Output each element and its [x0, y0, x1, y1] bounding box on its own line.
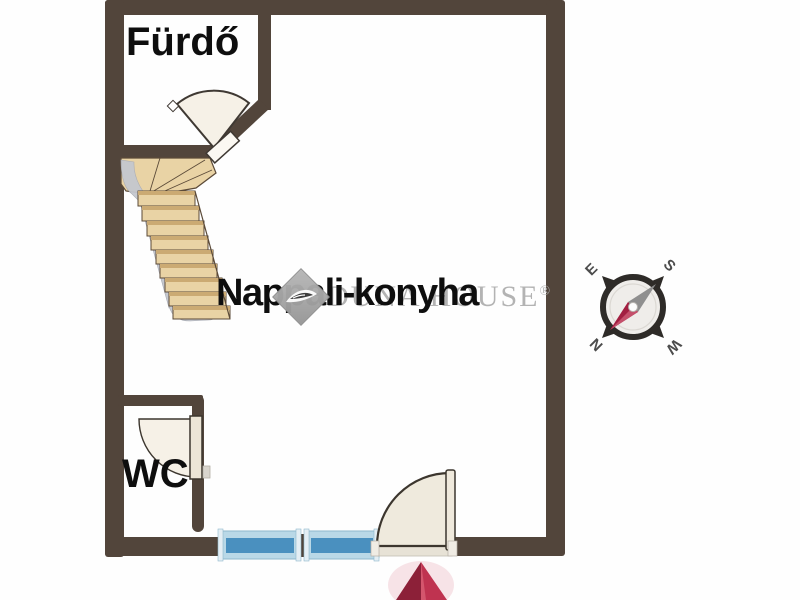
compass-rose-icon — [602, 276, 664, 338]
room-label-wc: WC — [122, 452, 189, 497]
entrance-door — [371, 470, 457, 556]
room-label-nappali-konyha: Nappali-konyha — [216, 272, 478, 315]
floorplan-canvas: DUNA HOUSE® Fürdő Nappali-konyha WC E S … — [0, 0, 800, 600]
window-1 — [218, 529, 301, 561]
staircase — [121, 158, 230, 321]
window-2 — [304, 529, 379, 561]
registered-trademark-symbol: ® — [540, 284, 551, 299]
room-label-furdo: Fürdő — [126, 20, 239, 65]
duna-house-diamond-logo-icon — [269, 265, 333, 329]
entrance-arrow-icon — [388, 561, 454, 600]
